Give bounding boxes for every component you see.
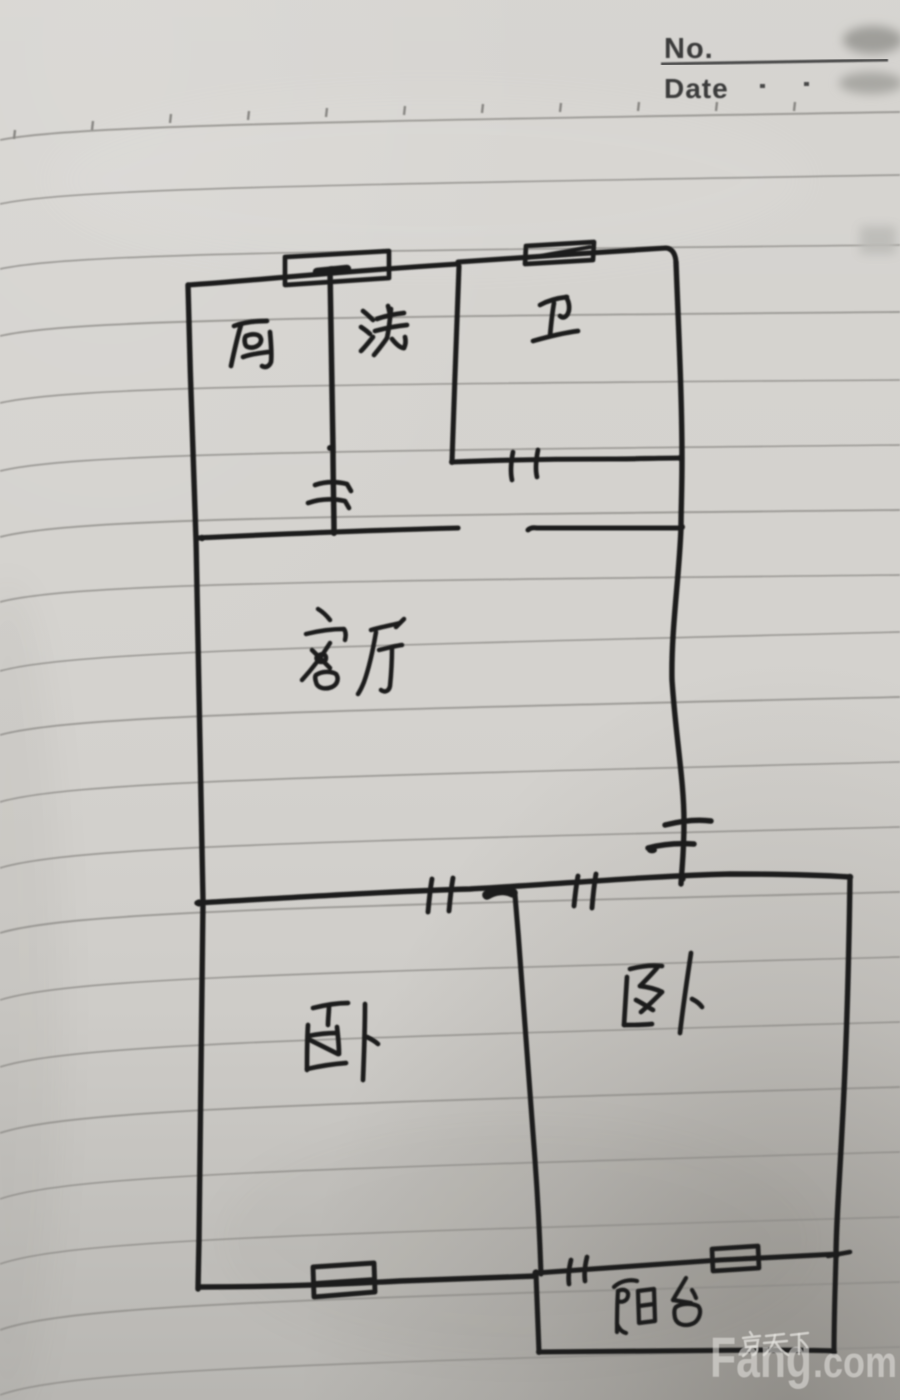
svg-text:Date: Date — [664, 73, 729, 104]
svg-text:Fang: Fang — [710, 1326, 812, 1390]
svg-text:No.: No. — [664, 33, 714, 65]
svg-text:.com: .com — [813, 1338, 897, 1387]
